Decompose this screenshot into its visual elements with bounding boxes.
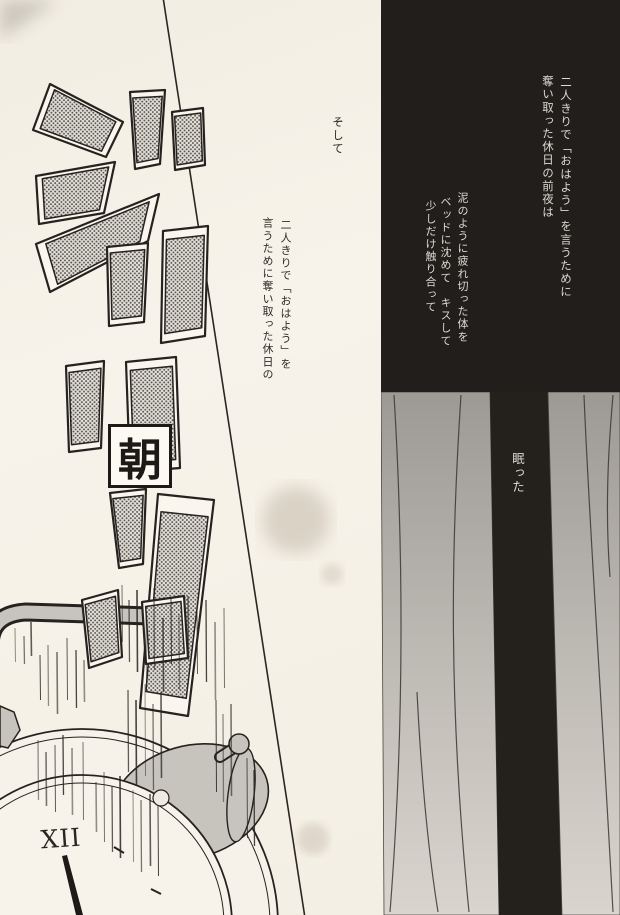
narration-white-line1: 二人きりで「おはよう」を xyxy=(277,219,292,370)
narration-white-line2: 言うために奪い取った休日の xyxy=(259,217,274,381)
curtain-panels xyxy=(381,392,620,915)
narration-black-line3: 泥のように疲れ切った体を xyxy=(454,192,469,343)
morning-caption-text: 朝 xyxy=(118,424,162,488)
bell-post-bolt xyxy=(153,790,169,806)
narration-black-line4: ベッドに沈めて キスして xyxy=(437,196,452,347)
narration-black-line2: 奪い取った休日の前夜は xyxy=(539,75,554,219)
narration-black-line1: 二人きりで「おはよう」を言うために xyxy=(557,76,572,299)
curtain-panel-left xyxy=(381,392,499,915)
narration-black-line5: 少しだけ触り合って xyxy=(422,200,437,313)
narration-soshite: そして xyxy=(329,116,344,155)
manga-page: 朝 そして 二人きりで「おはよう」を 言うために奪い取った休日の 二人きりで「お… xyxy=(0,0,620,915)
clock-numeral-xii: XII xyxy=(37,822,85,854)
morning-caption-box: 朝 xyxy=(108,424,172,488)
night-panel-black xyxy=(381,0,620,393)
narration-nemutta: 眠った xyxy=(509,452,524,494)
